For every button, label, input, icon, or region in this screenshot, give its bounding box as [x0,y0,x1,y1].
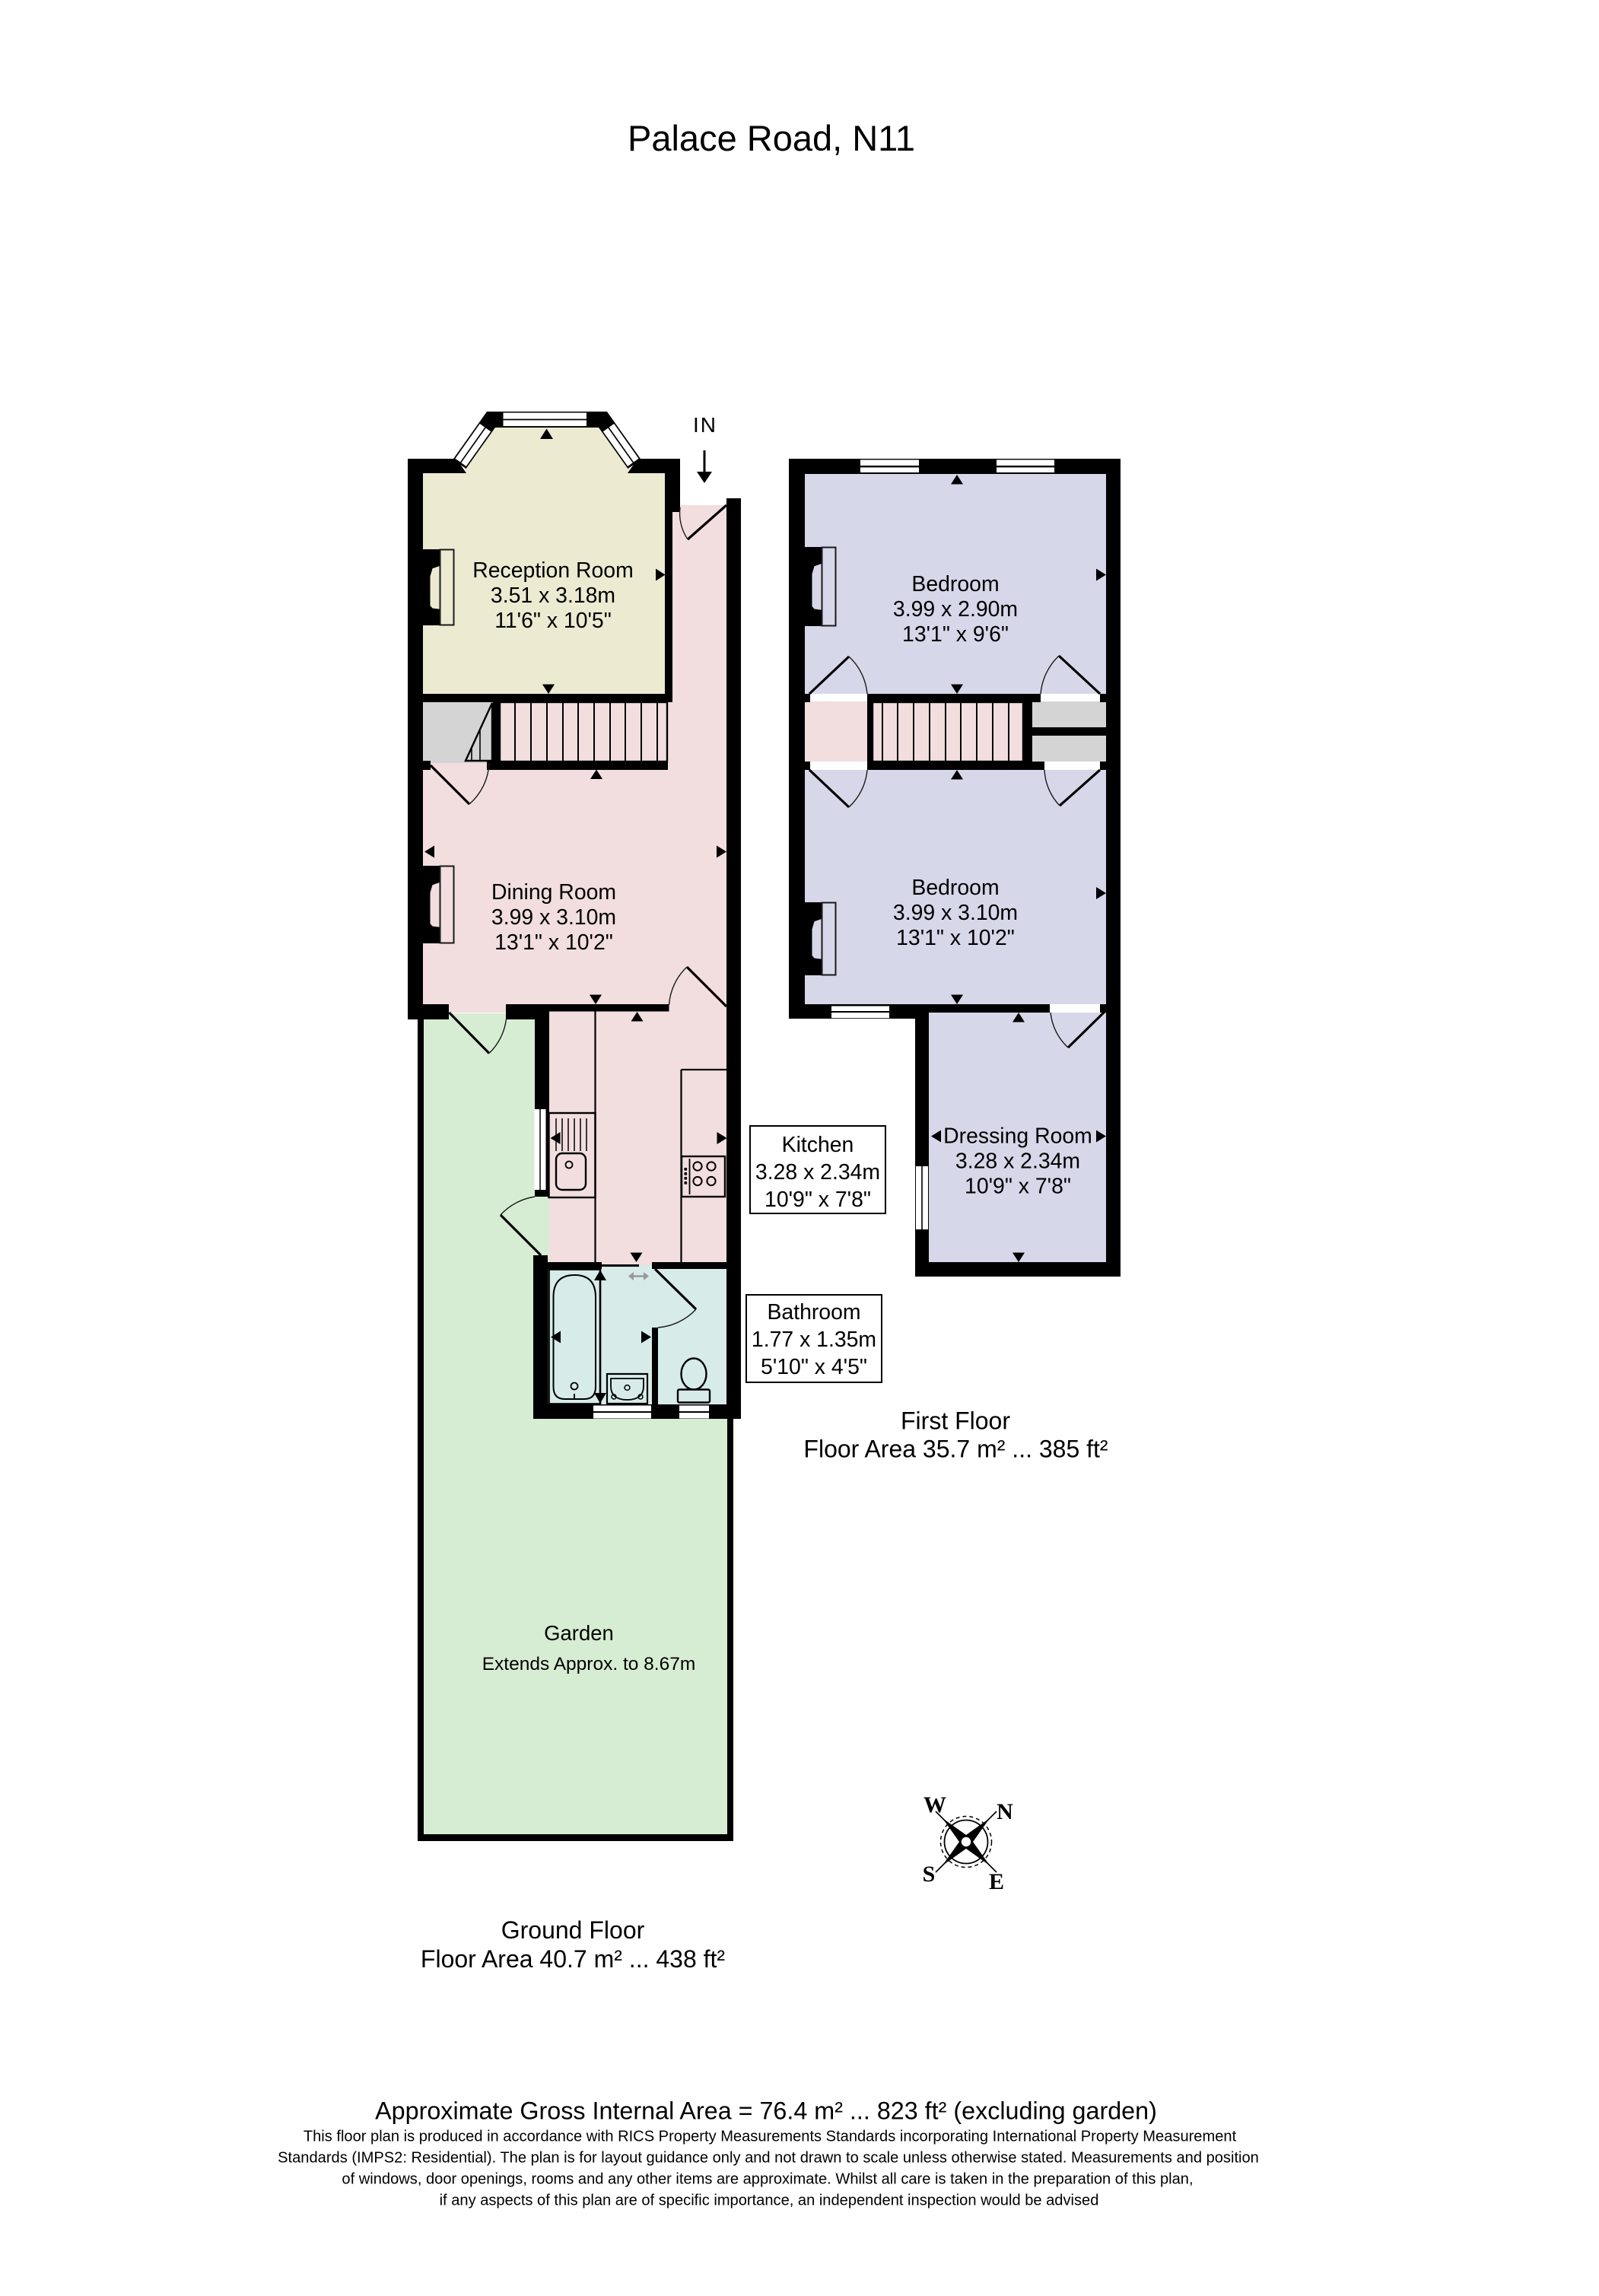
svg-text:5'10" x 4'5": 5'10" x 4'5" [761,1355,867,1379]
svg-text:3.99 x 2.90m: 3.99 x 2.90m [893,597,1018,622]
svg-text:Reception Room: Reception Room [472,558,633,583]
svg-text:Bedroom: Bedroom [911,572,999,596]
svg-text:Floor Area 35.7 m² ... 385 ft²: Floor Area 35.7 m² ... 385 ft² [803,1436,1108,1463]
svg-text:Palace Road, N11: Palace Road, N11 [628,118,915,158]
svg-text:This floor plan is produced in: This floor plan is produced in accordanc… [304,2128,1237,2145]
svg-text:10'9" x 7'8": 10'9" x 7'8" [765,1188,871,1212]
svg-text:Approximate Gross Internal Are: Approximate Gross Internal Area = 76.4 m… [375,2097,1157,2125]
svg-text:3.51 x 3.18m: 3.51 x 3.18m [491,584,615,608]
svg-text:Standards (IMPS2: Residential): Standards (IMPS2: Residential). The plan… [278,2149,1259,2166]
svg-text:13'1" x 10'2": 13'1" x 10'2" [896,926,1015,950]
svg-text:Bedroom: Bedroom [911,876,999,900]
svg-text:of windows, door openings, roo: of windows, door openings, rooms and any… [342,2171,1193,2188]
svg-text:First Floor: First Floor [901,1407,1010,1435]
svg-text:10'9" x 7'8": 10'9" x 7'8" [965,1175,1071,1199]
svg-text:Kitchen: Kitchen [782,1133,854,1157]
svg-text:3.28 x 2.34m: 3.28 x 2.34m [955,1150,1080,1174]
svg-text:13'1" x 10'2": 13'1" x 10'2" [494,930,613,955]
svg-text:Garden: Garden [544,1621,614,1645]
svg-text:Extends Approx. to 8.67m: Extends Approx. to 8.67m [482,1654,696,1674]
svg-text:Dining Room: Dining Room [491,880,616,905]
svg-text:3.99 x 3.10m: 3.99 x 3.10m [491,905,616,930]
svg-text:S: S [923,1862,936,1887]
svg-text:if any aspects of this plan ar: if any aspects of this plan are of speci… [440,2193,1099,2209]
svg-text:W: W [923,1792,946,1817]
svg-text:Floor Area 40.7 m² ... 438 ft²: Floor Area 40.7 m² ... 438 ft² [421,1945,726,1973]
svg-text:IN: IN [693,413,717,437]
svg-text:3.99 x 3.10m: 3.99 x 3.10m [893,901,1018,925]
svg-text:3.28 x 2.34m: 3.28 x 2.34m [755,1160,880,1185]
svg-text:Ground Floor: Ground Floor [501,1916,645,1944]
svg-text:1.77 x 1.35m: 1.77 x 1.35m [752,1328,876,1352]
svg-text:Bathroom: Bathroom [767,1300,860,1324]
svg-text:Dressing Room: Dressing Room [943,1124,1092,1149]
svg-text:11'6" x 10'5": 11'6" x 10'5" [494,609,612,633]
svg-text:N: N [997,1799,1013,1824]
svg-text:13'1" x 9'6": 13'1" x 9'6" [902,622,1009,647]
svg-text:E: E [989,1869,1004,1894]
